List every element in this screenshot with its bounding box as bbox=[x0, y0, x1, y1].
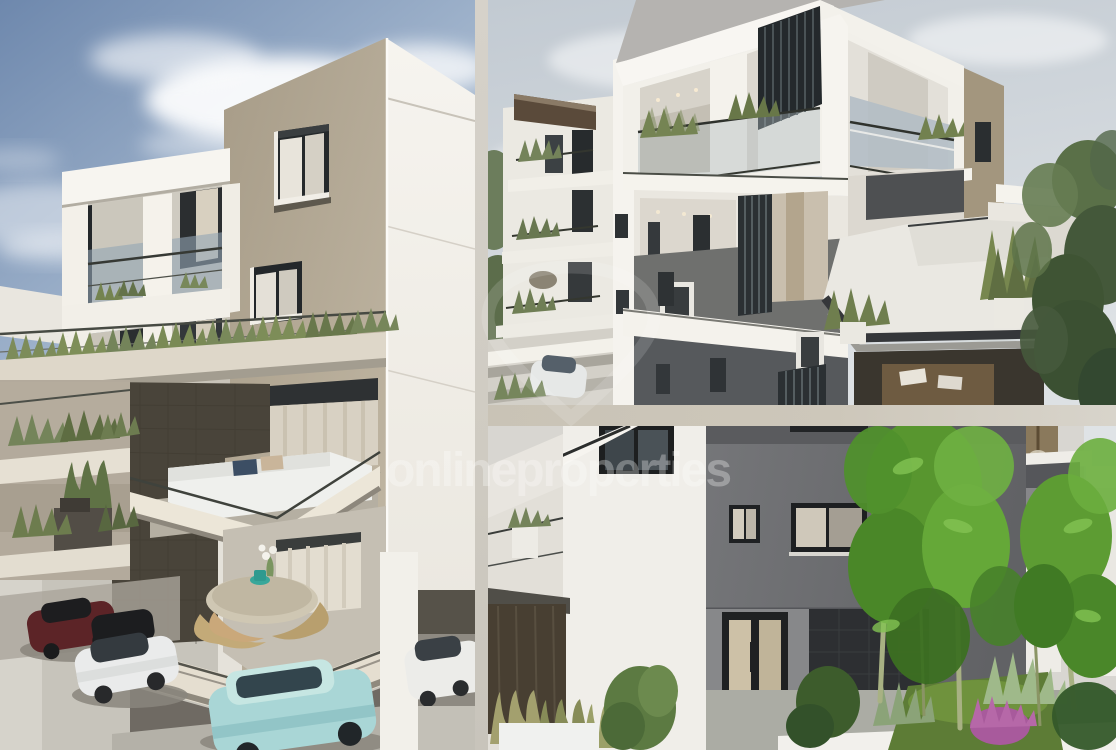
svg-text:onlineproperties: onlineproperties bbox=[386, 444, 730, 497]
